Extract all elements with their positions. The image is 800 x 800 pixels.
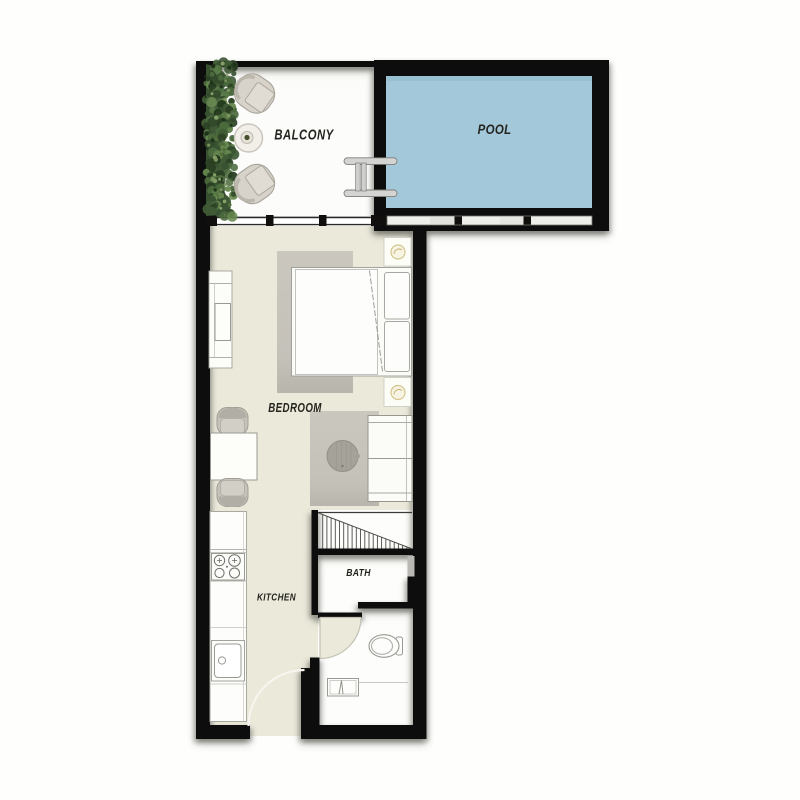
svg-text:POOL: POOL	[478, 122, 512, 137]
svg-text:BALCONY: BALCONY	[274, 126, 334, 143]
svg-text:BEDROOM: BEDROOM	[268, 402, 322, 415]
svg-text:KITCHEN: KITCHEN	[257, 590, 296, 602]
svg-text:BATH: BATH	[346, 567, 371, 579]
